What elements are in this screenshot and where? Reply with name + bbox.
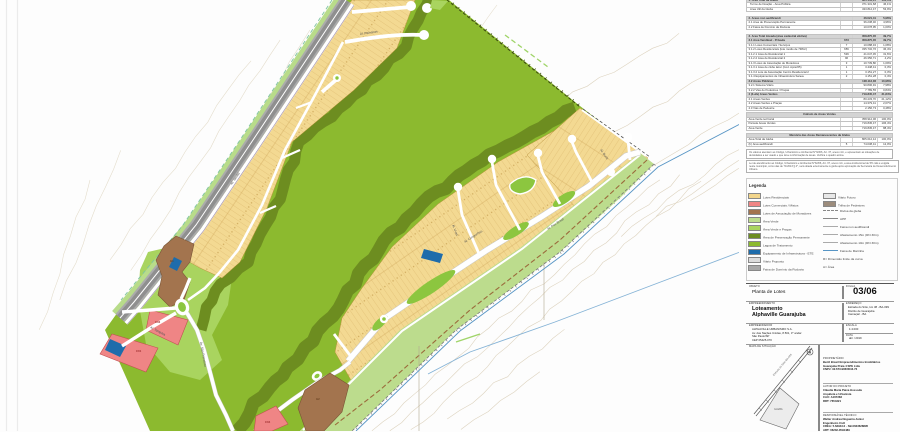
svg-text:G1: G1 xyxy=(170,259,174,263)
svg-text:Estrada do Sítio BA-099: Estrada do Sítio BA-099 xyxy=(772,352,793,376)
svg-text:C04: C04 xyxy=(265,420,271,424)
svg-text:GLEBA: GLEBA xyxy=(774,407,783,411)
svg-text:G2: G2 xyxy=(316,397,320,401)
svg-text:C01: C01 xyxy=(136,349,142,353)
svg-text:C03: C03 xyxy=(155,320,161,324)
